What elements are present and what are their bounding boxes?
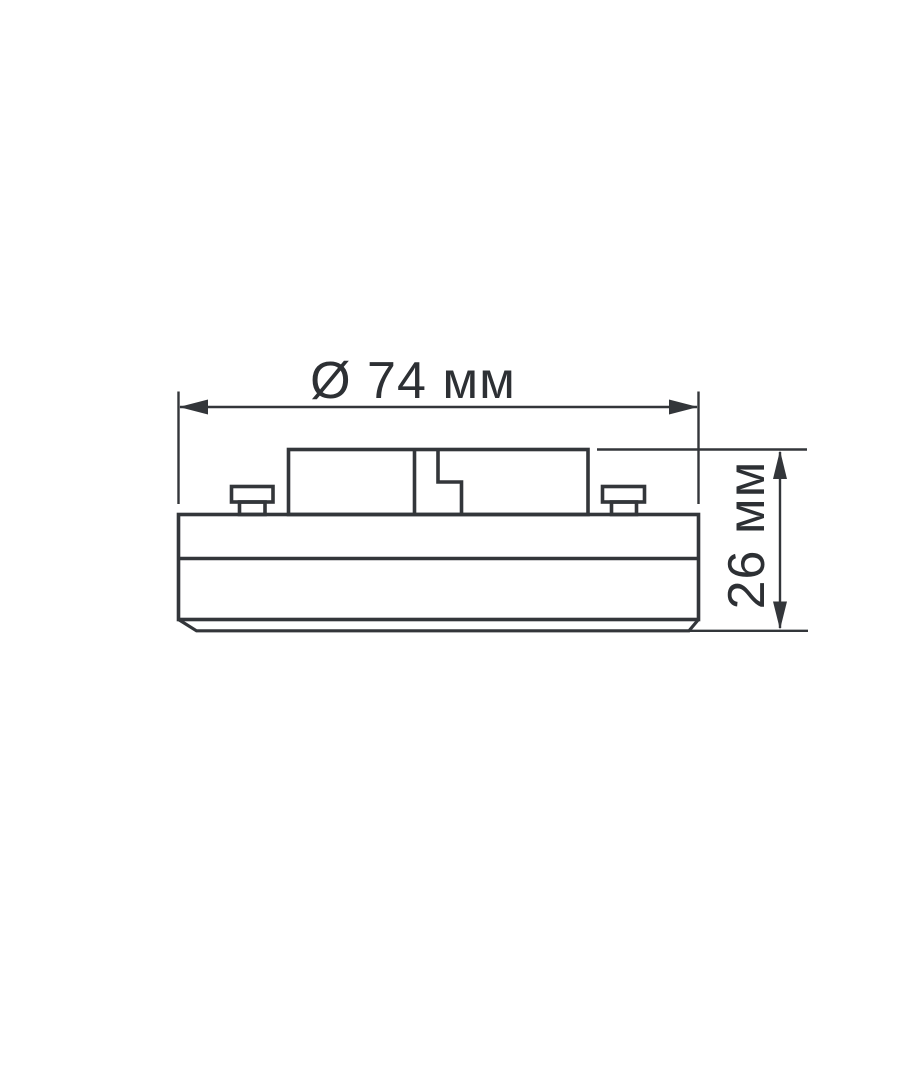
figure-canvas: Ø 74 мм 26 мм: [0, 0, 910, 1080]
right-pin-stem: [612, 502, 637, 515]
diameter-label: Ø 74 мм: [310, 352, 516, 410]
lamp-body-outline: [179, 515, 699, 620]
height-label: 26 мм: [718, 461, 776, 610]
diameter-arrow-left-icon: [179, 400, 208, 415]
lamp-dimension-diagram: Ø 74 мм 26 мм: [0, 0, 910, 1080]
drawing-strokes: [179, 392, 809, 631]
left-pin-stem: [240, 502, 266, 515]
diameter-arrow-right-icon: [669, 400, 698, 415]
left-pin-head: [232, 487, 274, 503]
right-pin-head: [603, 487, 645, 503]
dimension-labels: Ø 74 мм 26 мм: [310, 352, 776, 609]
cap-notch-step: [438, 450, 462, 515]
